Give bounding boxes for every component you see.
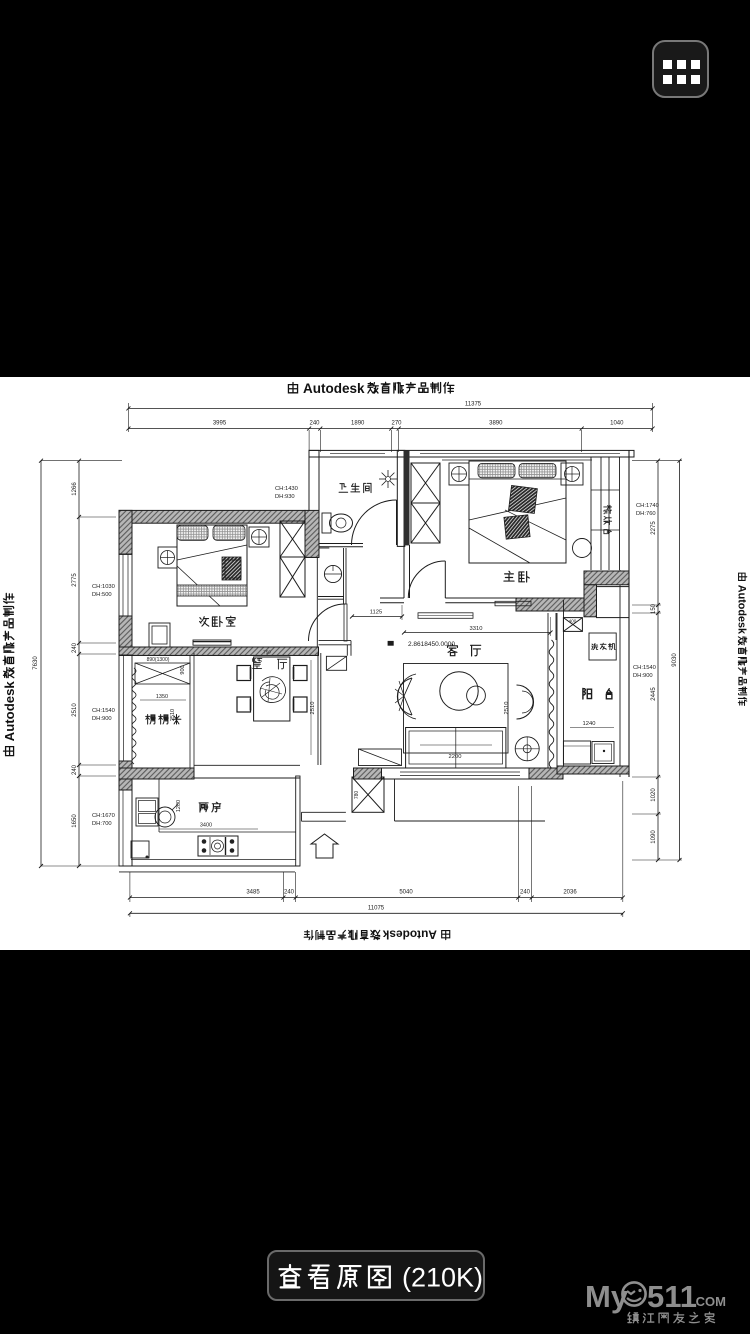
svg-text:DH:930: DH:930 — [275, 494, 295, 500]
svg-text:1200: 1200 — [176, 800, 182, 812]
svg-text:400: 400 — [569, 619, 577, 624]
svg-text:750: 750 — [263, 650, 271, 655]
svg-text:DH:500: DH:500 — [92, 592, 112, 598]
svg-text:DH:760: DH:760 — [636, 511, 656, 517]
svg-text:780: 780 — [354, 791, 360, 800]
svg-text:Autodesk: Autodesk — [735, 585, 747, 635]
svg-text:11375: 11375 — [465, 402, 482, 408]
svg-text:1240: 1240 — [583, 721, 596, 727]
svg-text:(210K): (210K) — [402, 1263, 483, 1293]
svg-text:2445: 2445 — [651, 687, 657, 701]
svg-text:1350: 1350 — [156, 694, 168, 700]
svg-text:1125: 1125 — [370, 610, 382, 616]
svg-text:3890: 3890 — [489, 421, 503, 427]
svg-text:2036: 2036 — [563, 890, 577, 896]
svg-text:2200: 2200 — [449, 754, 462, 760]
svg-text:Autodesk: Autodesk — [382, 927, 437, 941]
svg-text:DH:900: DH:900 — [633, 673, 653, 679]
svg-text:.COM: .COM — [692, 1294, 726, 1309]
svg-text:240: 240 — [72, 642, 78, 653]
svg-text:CH:1540: CH:1540 — [92, 708, 115, 714]
svg-text:2775: 2775 — [72, 573, 78, 587]
svg-text:240: 240 — [72, 764, 78, 775]
svg-text:1040: 1040 — [610, 421, 624, 427]
svg-text:Autodesk: Autodesk — [303, 381, 365, 396]
svg-text:3310: 3310 — [470, 626, 483, 632]
svg-text:CH:1430: CH:1430 — [275, 486, 298, 492]
svg-text:890(1300): 890(1300) — [147, 657, 170, 663]
svg-text:7630: 7630 — [33, 656, 39, 670]
svg-text:2.8618450.0000: 2.8618450.0000 — [408, 641, 455, 648]
svg-text:240: 240 — [309, 421, 320, 427]
svg-text:240: 240 — [520, 890, 531, 896]
svg-text:2275: 2275 — [651, 521, 657, 535]
svg-text:3995: 3995 — [213, 421, 227, 427]
svg-text:1266: 1266 — [72, 482, 78, 496]
svg-text:5040: 5040 — [399, 890, 413, 896]
svg-text:CH:1030: CH:1030 — [92, 584, 115, 590]
svg-text:DH:700: DH:700 — [92, 821, 112, 827]
svg-text:DH:900: DH:900 — [92, 716, 112, 722]
svg-text:3485: 3485 — [246, 890, 260, 896]
svg-text:2510: 2510 — [72, 703, 78, 717]
svg-text:CH:1740: CH:1740 — [636, 503, 659, 509]
svg-text:270: 270 — [391, 421, 402, 427]
svg-text:9030: 9030 — [672, 653, 678, 667]
svg-text:2510: 2510 — [504, 702, 510, 715]
svg-text:900: 900 — [180, 665, 186, 674]
svg-text:CH:1670: CH:1670 — [92, 813, 115, 819]
svg-text:3400: 3400 — [200, 823, 212, 829]
svg-text:240: 240 — [284, 890, 295, 896]
svg-text:1090: 1090 — [651, 830, 657, 844]
svg-text:11075: 11075 — [368, 906, 385, 912]
svg-text:1020: 1020 — [651, 788, 657, 802]
svg-text:Autodesk: Autodesk — [2, 681, 17, 742]
svg-text:1890: 1890 — [351, 421, 365, 427]
svg-text:CH:1540: CH:1540 — [633, 665, 656, 671]
svg-text:511: 511 — [647, 1279, 697, 1314]
svg-text:1650: 1650 — [72, 814, 78, 828]
